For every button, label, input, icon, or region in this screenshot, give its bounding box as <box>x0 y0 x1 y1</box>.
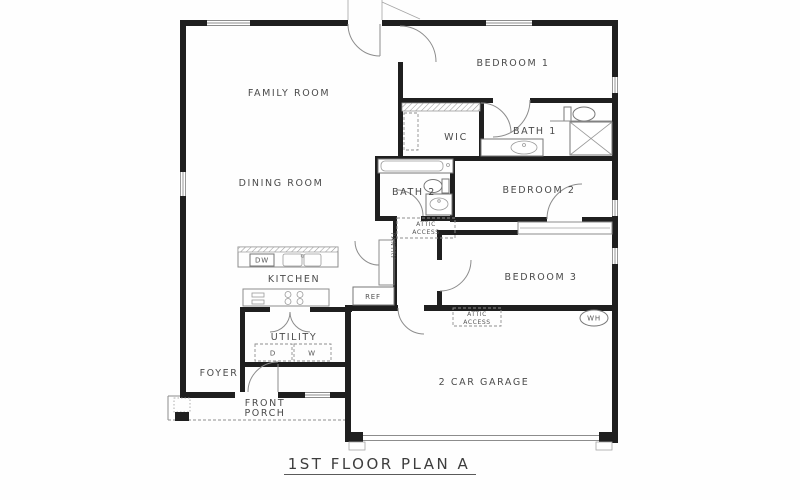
dryer-label: D <box>270 350 276 358</box>
wall-bedroom3-left-b <box>437 291 442 307</box>
bath1-vanity <box>481 139 543 156</box>
wall-bottom-foyer-a <box>180 392 235 398</box>
dining-room-label: DINING ROOM <box>239 178 324 189</box>
bedroom2-label: BEDROOM 2 <box>502 185 575 196</box>
utility-appliances <box>255 344 331 361</box>
bedroom3-door-arc <box>440 260 471 291</box>
bath1-label: BATH 1 <box>513 126 557 137</box>
bedroom1-door-arc <box>400 26 436 62</box>
kitchen-range-counter <box>243 289 329 306</box>
utility-double-door-left-arc <box>270 312 290 332</box>
water-heater-label: WH <box>587 315 601 323</box>
wall-top-family <box>180 20 348 26</box>
family-room-label: FAMILY ROOM <box>248 88 330 99</box>
toilet-bowl <box>573 107 595 121</box>
attic-access-garage-line2: ACCESS <box>463 319 490 326</box>
garage-door <box>349 436 612 451</box>
rear-door <box>348 24 380 56</box>
window-bedroom3-right <box>611 248 619 264</box>
window-bedroom1-right <box>611 77 619 93</box>
attic-access-hall-line2: ACCESS <box>412 229 439 236</box>
attic-access-garage-line1: ATTIC <box>467 311 487 318</box>
wall-utility-bottom <box>240 362 347 367</box>
refrigerator-label: REF <box>365 293 381 301</box>
wall-bedroom2-bottom-b <box>582 217 612 222</box>
front-porch-label-line2: PORCH <box>244 408 285 419</box>
wic-door-arc <box>481 103 511 133</box>
wall-top-garage-b <box>424 305 612 311</box>
wall-bedroom2-bottom-a <box>450 217 547 222</box>
bedroom1-label: BEDROOM 1 <box>476 58 549 69</box>
foyer-label: FOYER <box>200 368 239 379</box>
dishwasher-label: DW <box>255 257 269 265</box>
plan-title: 1ST FLOOR PLAN A <box>284 455 476 475</box>
bath2-label: BATH 2 <box>392 187 436 198</box>
floor-plan-drawing: FAMILY ROOM DINING ROOM BEDROOM 1 WIC BA… <box>0 0 800 500</box>
rear-patio-lines <box>348 0 420 20</box>
shower <box>570 122 612 155</box>
bathtub <box>378 159 453 173</box>
pantry-door-arc <box>355 241 379 265</box>
window-foyer-bottom <box>305 391 330 399</box>
garage-corner-right <box>599 432 618 442</box>
wic-shelving <box>402 103 480 150</box>
utility-double-door-right-arc <box>290 312 310 332</box>
wall-left <box>180 20 186 398</box>
wall-bedroom1-bottom-b <box>530 98 618 103</box>
wall-bedroom1-bottom-a <box>398 98 493 103</box>
washer-label: W <box>308 350 316 358</box>
window-dining-left <box>179 172 187 196</box>
cooktop-burners <box>285 292 303 305</box>
wall-right-house <box>612 20 618 311</box>
pantry-label: PANTRY <box>389 233 396 260</box>
wall-top-garage-a <box>345 305 398 311</box>
wall-left-garage <box>345 305 351 438</box>
attic-access-hall-line1: ATTIC <box>416 221 436 228</box>
garage-entry-door-arc <box>398 308 424 334</box>
wall-right-garage <box>612 311 618 443</box>
wall-utility-left <box>240 307 245 392</box>
toilet-tank <box>564 107 571 121</box>
window-bedroom1-top <box>486 19 532 27</box>
utility-label: UTILITY <box>271 332 317 343</box>
wall-bedroom3-top <box>437 230 518 235</box>
wic-label: WIC <box>444 132 468 143</box>
kitchen-label: KITCHEN <box>268 274 320 285</box>
window-family-top <box>207 19 250 27</box>
kitchen-sink <box>283 254 321 266</box>
window-bedroom2-right <box>611 200 619 216</box>
wall-kitchen-bottom-b <box>310 307 352 312</box>
bedroom3-label: BEDROOM 3 <box>504 272 577 283</box>
plan-title-text: 1ST FLOOR PLAN A <box>288 455 471 473</box>
garage-corner-left <box>345 432 363 442</box>
wall-bottom-foyer-c <box>330 392 351 398</box>
porch-column <box>175 412 189 421</box>
floor-plan-canvas: FAMILY ROOM DINING ROOM BEDROOM 1 WIC BA… <box>0 0 800 500</box>
bedroom3-closet <box>518 222 612 234</box>
kitchen-island <box>238 247 338 267</box>
garage-label: 2 CAR GARAGE <box>439 377 530 388</box>
